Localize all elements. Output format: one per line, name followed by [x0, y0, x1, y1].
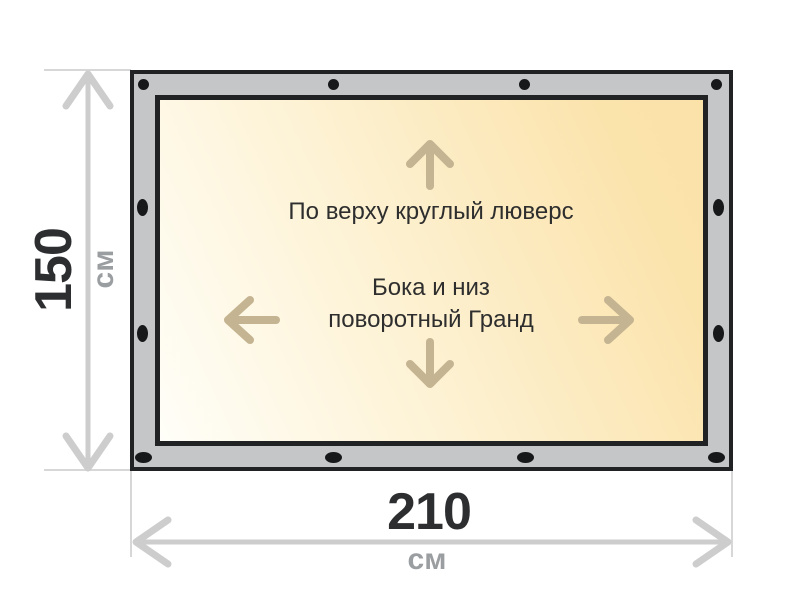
grommet-top-circle	[138, 79, 149, 90]
grommet-side-oval	[713, 325, 724, 342]
top-grommet-note: По верху круглый люверс	[288, 196, 573, 228]
grommet-bottom-oval	[708, 452, 725, 463]
banner-spec-diagram: 150 см По верху круглый люверс Бока и ни…	[0, 0, 800, 600]
left-arrow-icon	[218, 292, 282, 348]
up-arrow-icon	[402, 134, 458, 190]
grommet-bottom-oval	[517, 452, 534, 463]
grommet-bottom-oval	[325, 452, 342, 463]
grommet-side-oval	[137, 325, 148, 342]
banner-frame	[130, 70, 733, 471]
width-value: 210	[387, 482, 471, 542]
width-unit: см	[408, 543, 447, 577]
grommet-side-oval	[137, 199, 148, 216]
grommet-top-circle	[519, 79, 530, 90]
right-arrow-icon	[576, 292, 640, 348]
sides-bottom-note-line2: поворотный Гранд	[328, 304, 534, 336]
height-value: 150	[24, 228, 84, 312]
grommet-top-circle	[711, 79, 722, 90]
grommet-top-circle	[328, 79, 339, 90]
sides-bottom-grommet-note: Бока и низ поворотный Гранд	[328, 272, 534, 336]
down-arrow-icon	[402, 338, 458, 394]
grommet-bottom-oval	[135, 452, 152, 463]
grommet-side-oval	[713, 199, 724, 216]
height-unit: см	[87, 250, 121, 289]
sides-bottom-note-line1: Бока и низ	[328, 272, 534, 304]
